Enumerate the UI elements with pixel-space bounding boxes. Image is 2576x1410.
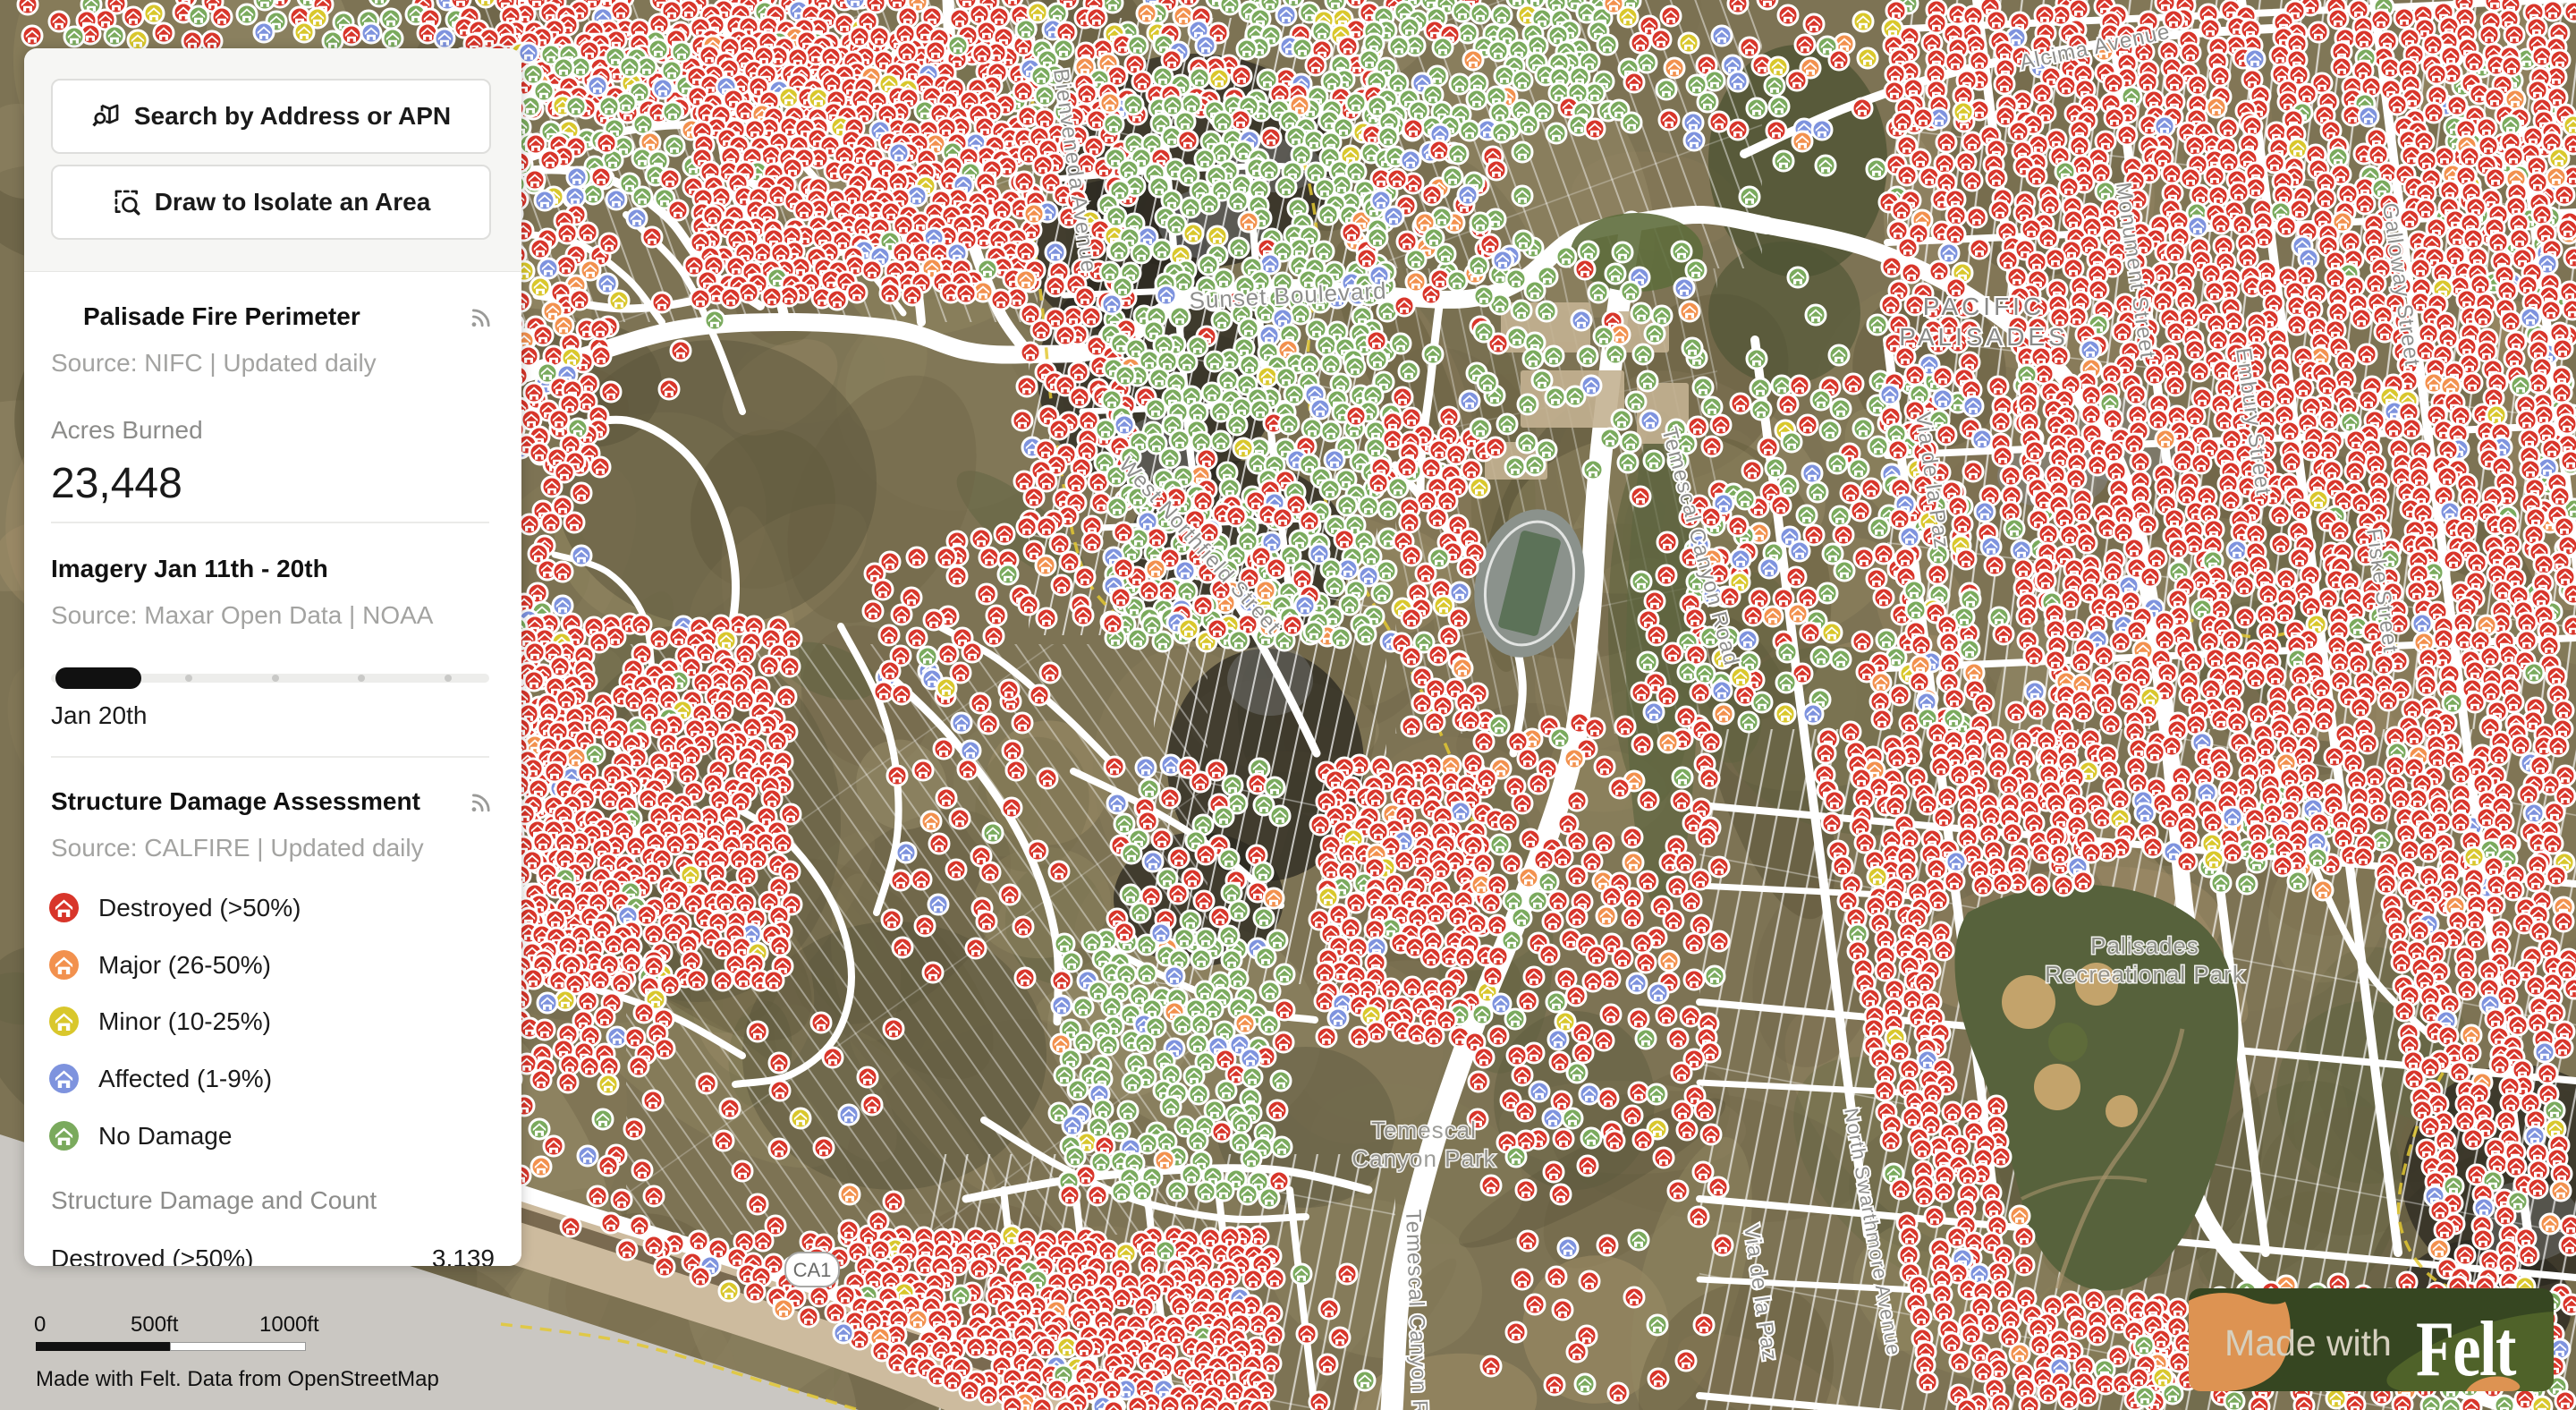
svg-text:Canyon Park: Canyon Park [1352,1145,1496,1172]
svg-text:PALISADES: PALISADES [1899,323,2069,351]
svg-text:Recreational Park: Recreational Park [2045,961,2245,988]
svg-text:Felt: Felt [2416,1306,2517,1391]
svg-text:Made with: Made with [2224,1322,2392,1363]
svg-text:CA1: CA1 [793,1259,832,1281]
svg-text:PACIFIC: PACIFIC [1923,293,2045,320]
svg-text:Palisades: Palisades [2090,932,2199,959]
svg-text:Temescal: Temescal [1371,1117,1477,1143]
